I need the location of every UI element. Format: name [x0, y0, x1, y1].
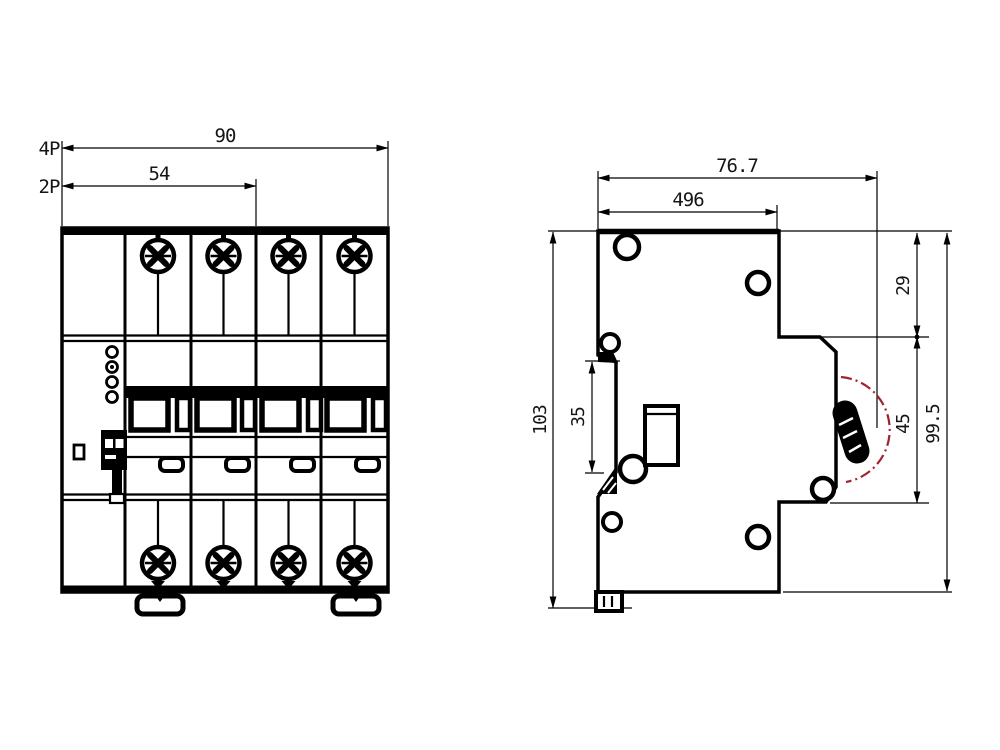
dim-label-45: 45: [893, 414, 914, 434]
rivet-hole: [747, 526, 769, 548]
rivet-hole: [603, 513, 621, 531]
toggle-handle: [262, 398, 299, 430]
terminal-screw: [339, 234, 371, 335]
front-view: 90 4P 54 2P: [39, 125, 388, 614]
side-view: 76.7 496 103 35 29 45: [530, 155, 952, 611]
screw-icon: [208, 240, 240, 272]
dim-label-103: 103: [530, 405, 551, 435]
dimension-overall-width: 90 4P: [39, 125, 388, 226]
dimension-total-height: 103: [530, 232, 553, 608]
terminal-screw: [339, 501, 371, 589]
terminal-screw: [273, 234, 305, 335]
label-tab: [226, 458, 249, 471]
label-tabs: [160, 458, 379, 471]
dim-label-76-7: 76.7: [716, 155, 758, 177]
screw-icon: [142, 547, 174, 579]
toggle-lever-assembly: [839, 377, 890, 482]
mounting-feet: [137, 595, 379, 614]
terminal-screw: [273, 501, 305, 589]
dimension-two-pole-width: 54 2P: [39, 163, 256, 226]
dimension-body-depth: 496: [598, 189, 777, 229]
screw-icon: [339, 547, 371, 579]
screw-icon: [339, 240, 371, 272]
flag-stem: [112, 470, 122, 494]
rcd-module: [74, 347, 127, 504]
mounting-foot: [333, 595, 379, 614]
test-button: [74, 445, 84, 459]
handle-slot: [373, 398, 386, 430]
rivet-hole: [615, 235, 639, 259]
pole-label-4p: 4P: [39, 138, 60, 160]
terminal-screw: [208, 234, 240, 335]
din-clip: [597, 465, 617, 494]
toggle-handle: [131, 398, 168, 430]
dimension-top-step: 29: [893, 233, 919, 339]
indicator-led-icon: [107, 392, 118, 403]
screw-icon: [273, 547, 305, 579]
label-holder: [645, 406, 678, 465]
rivet-hole: [747, 272, 769, 294]
dimension-din-rail: 35: [568, 361, 620, 473]
dim-label-496: 496: [672, 189, 704, 211]
trip-indicator-flag: [101, 430, 127, 470]
mounting-foot: [137, 595, 183, 614]
screw-icon: [273, 240, 305, 272]
indicator-led-icon: [107, 347, 118, 358]
dimension-body-height: 99.5: [923, 233, 947, 591]
dim-label-29: 29: [893, 276, 914, 296]
terminal-screw: [142, 234, 174, 335]
indicator-led-icon: [107, 362, 118, 373]
din-foot: [596, 592, 622, 611]
toggle-handle: [197, 398, 234, 430]
toggle-handle-row: [125, 386, 388, 430]
side-profile-outline: [598, 231, 836, 592]
label-tab: [356, 458, 379, 471]
handle-slot: [308, 398, 321, 430]
handle-slot: [177, 398, 190, 430]
flag-stem-base: [110, 494, 124, 503]
breaker-dimension-drawing: 90 4P 54 2P: [0, 0, 1000, 750]
screw-icon: [208, 547, 240, 579]
dim-label-99-5: 99.5: [923, 404, 944, 444]
dim-label-35: 35: [568, 407, 589, 427]
indicator-led-icon: [107, 377, 118, 388]
screw-icon: [142, 240, 174, 272]
label-tab: [160, 458, 183, 471]
label-tab: [291, 458, 314, 471]
dim-label-54: 54: [149, 163, 170, 185]
terminal-screw: [142, 501, 174, 589]
handle-slot: [242, 398, 255, 430]
rivet-hole: [620, 456, 646, 482]
terminal-screw: [208, 501, 240, 589]
dimension-front-face: 45: [893, 337, 917, 503]
breaker-side-body: [596, 231, 836, 611]
rivet-hole: [601, 334, 619, 352]
technical-drawing-canvas: 90 4P 54 2P: [0, 0, 1000, 750]
dim-label-90: 90: [215, 125, 236, 147]
pole-label-2p: 2P: [39, 176, 60, 198]
rivet-hole: [812, 478, 834, 500]
toggle-handle: [327, 398, 364, 430]
